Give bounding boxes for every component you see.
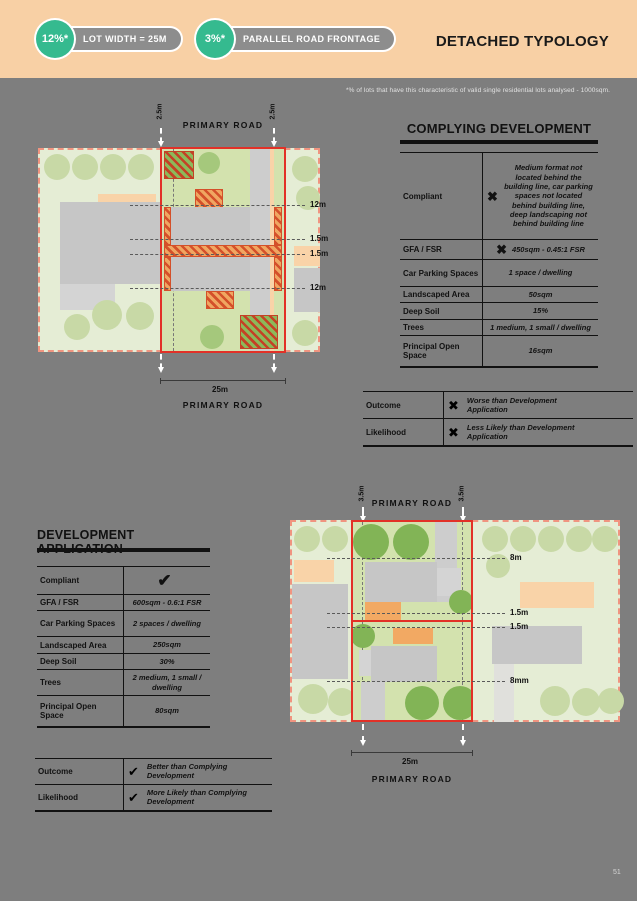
tree	[393, 524, 429, 560]
lot-width-percent-badge: 12%*	[36, 20, 74, 58]
dimension-label: 1.5m	[310, 234, 328, 243]
dimension-label: 12m	[310, 200, 326, 209]
development-application-title: DEVELOPMENT APPLICATION	[37, 528, 210, 556]
driveway	[361, 682, 385, 720]
report-page: LOT WIDTH = 25M 12%* PARALLEL ROAD FRONT…	[0, 0, 637, 901]
tree	[64, 314, 90, 340]
complying-development-table: Compliant ✖ Medium format not located be…	[400, 152, 598, 368]
complying-site-plan: 2.5m 2.5m PRIMARY ROAD	[0, 96, 360, 426]
setback-arrow-icon	[462, 724, 464, 742]
dimension-label: 12m	[310, 283, 326, 292]
dimension-label: 8m	[510, 553, 522, 562]
tree	[443, 686, 473, 720]
setback-arrow-icon	[273, 354, 275, 369]
dimension-label: 1.5m	[510, 608, 528, 617]
patio	[393, 628, 433, 644]
setback-label-right: 2.5m	[270, 92, 277, 120]
table-row: Landscaped Area 50sqm	[400, 287, 598, 303]
dwelling-building	[359, 650, 371, 676]
tree	[100, 154, 126, 180]
dimension-line	[327, 613, 505, 614]
tree	[482, 526, 508, 552]
non-compliant-landscape-area	[164, 151, 194, 179]
dimension-line	[327, 681, 505, 682]
tree	[353, 524, 389, 560]
tree	[592, 526, 618, 552]
non-compliant-setback	[274, 257, 282, 291]
table-row: Car Parking Spaces 2 spaces / dwelling	[37, 611, 210, 637]
subject-lot	[351, 520, 473, 722]
lot-width-label: 25m	[212, 385, 228, 394]
complying-outcome-table: Outcome ✖ Worse than Development Applica…	[363, 391, 633, 447]
setback-arrow-icon	[160, 128, 162, 143]
neighbour-patio	[294, 560, 334, 582]
tree	[200, 325, 224, 349]
tree	[72, 154, 98, 180]
dimension-line	[130, 288, 305, 289]
application-site-plan: 3.5m 3.5m PRIMARY ROAD	[285, 480, 637, 810]
table-row: GFA / FSR 600sqm - 0.6:1 FSR	[37, 595, 210, 611]
road-frontage-label: PARALLEL ROAD FRONTAGE	[215, 28, 394, 50]
title-rule	[37, 548, 210, 552]
dimension-label: 1.5m	[510, 622, 528, 631]
dimension-line	[130, 239, 305, 240]
tree	[128, 154, 154, 180]
cross-icon: ✖	[496, 243, 507, 256]
development-application-table: Compliant ✔ GFA / FSR 600sqm - 0.6:1 FSR…	[37, 566, 210, 728]
table-row: Deep Soil 30%	[37, 654, 210, 670]
complying-development-title: COMPLYING DEVELOPMENT	[400, 121, 598, 136]
tree	[126, 302, 154, 330]
title-rule	[400, 140, 598, 144]
table-row: Compliant ✖ Medium format not located be…	[400, 153, 598, 240]
cross-icon: ✖	[448, 399, 459, 412]
non-compliant-setback	[164, 257, 171, 291]
cross-icon: ✖	[448, 426, 459, 439]
tree	[44, 154, 70, 180]
non-compliant-area	[206, 291, 234, 309]
neighbour-building	[492, 626, 582, 664]
check-icon: ✔	[157, 572, 171, 589]
tree	[298, 684, 328, 714]
table-row: Trees 2 medium, 1 small / dwelling	[37, 670, 210, 696]
tree	[566, 526, 592, 552]
dwelling-building	[365, 562, 437, 602]
tree	[292, 156, 318, 182]
non-compliant-area	[195, 189, 223, 209]
table-row: Car Parking Spaces 1 space / dwelling	[400, 260, 598, 287]
dimension-line	[327, 627, 505, 628]
table-row: Outcome ✖ Worse than Development Applica…	[363, 392, 633, 419]
setback-label-left: 2.5m	[157, 92, 164, 120]
tree	[540, 686, 570, 716]
dimension-line	[327, 558, 505, 559]
page-number: 51	[613, 869, 621, 876]
page-title: DETACHED TYPOLOGY	[436, 33, 609, 50]
non-compliant-separation	[164, 245, 282, 257]
footnote-text: *% of lots that have this characteristic…	[346, 87, 610, 94]
table-row: Likelihood ✔ More Likely than Complying …	[35, 785, 272, 810]
tree	[292, 320, 318, 346]
table-row: Principal Open Space 16sqm	[400, 336, 598, 366]
lot-width-dimension-line	[351, 752, 473, 753]
table-row: Compliant ✔	[37, 567, 210, 595]
lot-width-label: 25m	[402, 757, 418, 766]
patio	[365, 602, 401, 620]
non-compliant-landscape-area	[240, 315, 278, 349]
application-outcome-table: Outcome ✔ Better than Complying Developm…	[35, 758, 272, 812]
neighbour-building	[60, 202, 160, 284]
check-icon: ✔	[128, 765, 139, 778]
tree	[405, 686, 439, 720]
primary-road-label-top: PRIMARY ROAD	[337, 498, 487, 508]
tree	[294, 526, 320, 552]
tree	[92, 300, 122, 330]
page-header: LOT WIDTH = 25M 12%* PARALLEL ROAD FRONT…	[0, 0, 637, 78]
lot-subdivision-line	[353, 620, 471, 622]
driveway	[494, 664, 514, 722]
setback-arrow-icon	[362, 507, 364, 518]
tree	[449, 590, 473, 614]
neighbour-patio	[520, 582, 594, 608]
dwelling-building	[171, 257, 250, 291]
table-row: Trees 1 medium, 1 small / dwelling	[400, 320, 598, 336]
setback-arrow-icon	[462, 507, 464, 518]
table-row: Deep Soil 15%	[400, 303, 598, 319]
tree	[572, 688, 600, 716]
table-row: Likelihood ✖ Less Likely than Developmen…	[363, 419, 633, 445]
primary-road-label-bottom: PRIMARY ROAD	[148, 400, 298, 410]
neighbour-building	[292, 584, 348, 679]
table-row: Landscaped Area 250sqm	[37, 637, 210, 653]
dimension-label: 1.5m	[310, 249, 328, 258]
tree	[598, 688, 624, 714]
check-icon: ✔	[128, 791, 139, 804]
cross-icon: ✖	[487, 190, 498, 203]
subject-lot	[160, 147, 286, 353]
tree	[322, 526, 348, 552]
dimension-label: 8mm	[510, 676, 529, 685]
table-row: Outcome ✔ Better than Complying Developm…	[35, 759, 272, 785]
tree	[538, 526, 564, 552]
dimension-line	[130, 254, 305, 255]
lot-width-dimension-line	[160, 380, 286, 381]
setback-arrow-icon	[273, 128, 275, 143]
table-row: GFA / FSR ✖ 450sqm - 0.45:1 FSR	[400, 240, 598, 260]
tree	[198, 152, 220, 174]
setback-arrow-icon	[160, 354, 162, 369]
primary-road-label-bottom: PRIMARY ROAD	[337, 774, 487, 784]
dimension-line	[130, 205, 305, 206]
dwelling-building	[371, 646, 437, 682]
setback-arrow-icon	[362, 724, 364, 742]
primary-road-label-top: PRIMARY ROAD	[148, 120, 298, 130]
tree	[510, 526, 536, 552]
table-row: Principal Open Space 80sqm	[37, 696, 210, 726]
road-frontage-percent-badge: 3%*	[196, 20, 234, 58]
